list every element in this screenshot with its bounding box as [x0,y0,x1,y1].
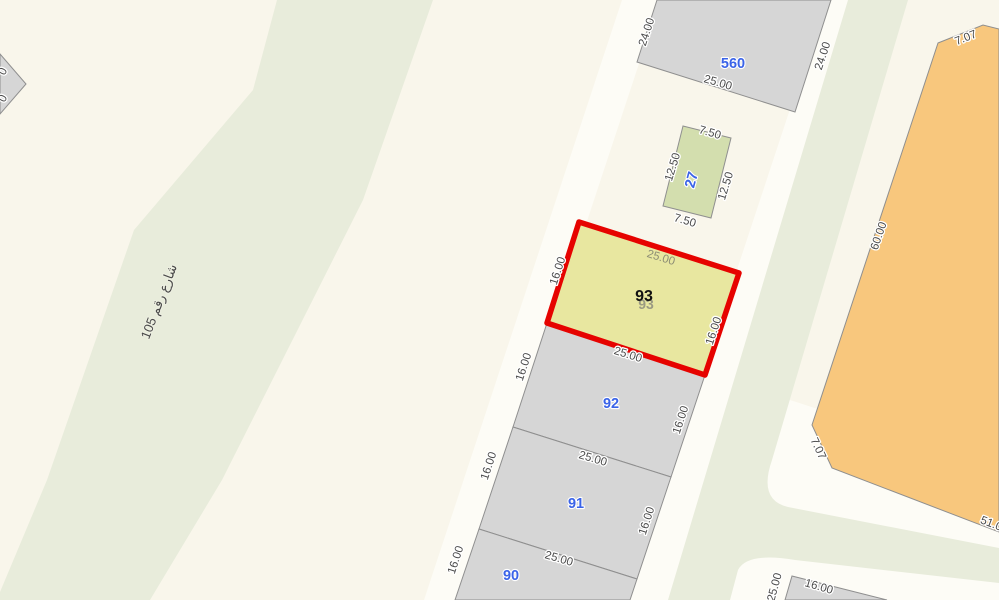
parcel-number-90: 90 [503,568,519,584]
cadastral-map-viewport: شارع رقم 105 24.00 25.00 24.00 560 7.50 … [0,0,999,600]
parcel-number-93: 93 [635,288,653,305]
parcel-number-92: 92 [603,396,619,412]
parcel-number-91: 91 [568,496,584,512]
parcel-number-560: 560 [721,56,745,72]
map-canvas: شارع رقم 105 24.00 25.00 24.00 560 7.50 … [0,0,999,600]
